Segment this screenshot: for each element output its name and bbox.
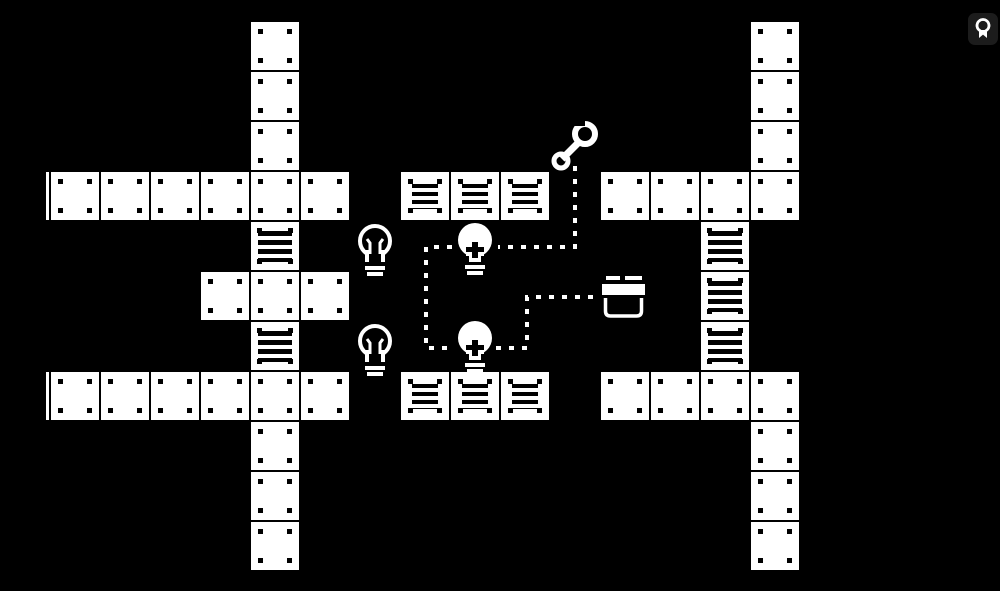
tile[interactable] <box>151 372 199 420</box>
wire-layer <box>0 0 1000 591</box>
tile[interactable] <box>651 372 699 420</box>
toolbox-item[interactable] <box>600 270 648 324</box>
bulb-on-icon <box>453 220 497 278</box>
tile[interactable] <box>701 172 749 220</box>
tile[interactable] <box>251 172 299 220</box>
vent-tile[interactable] <box>501 172 549 220</box>
achievements-button[interactable] <box>968 13 998 45</box>
toolbox-icon <box>600 270 648 324</box>
tile[interactable] <box>251 522 299 570</box>
tile[interactable] <box>151 172 199 220</box>
tile[interactable] <box>751 522 799 570</box>
tile[interactable] <box>751 372 799 420</box>
bulb-on-icon <box>453 318 497 376</box>
tile[interactable] <box>751 22 799 70</box>
tile[interactable] <box>601 172 649 220</box>
game-stage <box>0 0 1000 591</box>
crate-tile[interactable] <box>701 222 749 270</box>
tile[interactable] <box>751 72 799 120</box>
tile-edge-sliver <box>46 372 49 420</box>
tile[interactable] <box>101 372 149 420</box>
tile[interactable] <box>301 172 349 220</box>
tile[interactable] <box>701 372 749 420</box>
vent-tile[interactable] <box>501 372 549 420</box>
crate-tile[interactable] <box>251 322 299 370</box>
tile[interactable] <box>251 122 299 170</box>
crate-tile[interactable] <box>701 322 749 370</box>
vent-tile[interactable] <box>451 172 499 220</box>
bulb-off-icon <box>353 222 397 280</box>
lightbulb-on[interactable] <box>453 220 497 278</box>
tile[interactable] <box>251 372 299 420</box>
tile[interactable] <box>751 472 799 520</box>
lightbulb-off[interactable] <box>353 322 397 380</box>
tile[interactable] <box>301 272 349 320</box>
crate-tile[interactable] <box>701 272 749 320</box>
tile[interactable] <box>751 422 799 470</box>
tile[interactable] <box>651 172 699 220</box>
wrench-item[interactable] <box>550 115 602 173</box>
tile[interactable] <box>601 372 649 420</box>
tile[interactable] <box>301 372 349 420</box>
lightbulb-off[interactable] <box>353 222 397 280</box>
tile-edge-sliver <box>46 172 49 220</box>
tile[interactable] <box>51 372 99 420</box>
wire-path <box>426 247 452 348</box>
tile[interactable] <box>251 272 299 320</box>
tile[interactable] <box>101 172 149 220</box>
tile[interactable] <box>201 272 249 320</box>
tile[interactable] <box>751 122 799 170</box>
tile[interactable] <box>251 22 299 70</box>
wrench-icon <box>550 115 602 173</box>
tile[interactable] <box>251 472 299 520</box>
bulb-off-icon <box>353 322 397 380</box>
tile[interactable] <box>201 372 249 420</box>
vent-tile[interactable] <box>401 372 449 420</box>
wire-path <box>496 297 600 348</box>
tile[interactable] <box>51 172 99 220</box>
medal-icon <box>973 17 993 41</box>
vent-tile[interactable] <box>451 372 499 420</box>
tile[interactable] <box>251 72 299 120</box>
tile[interactable] <box>201 172 249 220</box>
tile[interactable] <box>751 172 799 220</box>
crate-tile[interactable] <box>251 222 299 270</box>
lightbulb-on[interactable] <box>453 318 497 376</box>
tile[interactable] <box>251 422 299 470</box>
vent-tile[interactable] <box>401 172 449 220</box>
